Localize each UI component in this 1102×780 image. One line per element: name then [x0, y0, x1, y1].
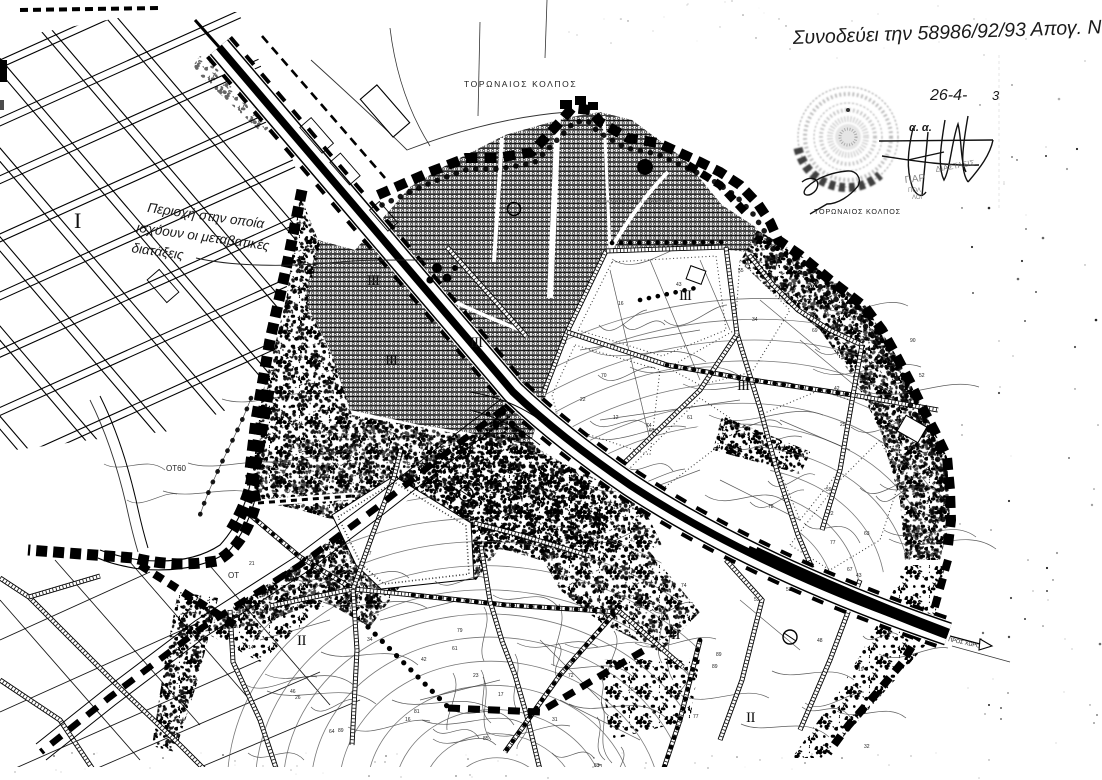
- svg-text:52: 52: [919, 373, 925, 379]
- svg-text:79: 79: [457, 628, 463, 634]
- svg-text:3: 3: [992, 88, 1000, 103]
- svg-text:ΛΟΓ: ΛΟΓ: [912, 195, 925, 201]
- svg-text:III: III: [367, 273, 380, 289]
- svg-text:40: 40: [597, 513, 603, 519]
- svg-text:17: 17: [498, 692, 504, 698]
- svg-text:ΠΑΡ: ΠΑΡ: [904, 173, 926, 186]
- svg-text:42: 42: [421, 657, 427, 663]
- svg-text:ΟΤ: ΟΤ: [228, 571, 239, 580]
- svg-text:48: 48: [817, 638, 823, 644]
- svg-text:64: 64: [329, 729, 335, 735]
- svg-text:61: 61: [687, 415, 693, 421]
- svg-text:72: 72: [568, 673, 574, 679]
- svg-text:78: 78: [768, 504, 774, 510]
- svg-text:81: 81: [414, 709, 420, 715]
- svg-text:II: II: [522, 538, 531, 554]
- svg-text:21: 21: [629, 595, 635, 601]
- svg-text:III: III: [679, 288, 692, 304]
- svg-text:13: 13: [613, 505, 619, 511]
- svg-text:37: 37: [587, 508, 593, 514]
- svg-text:43: 43: [856, 573, 862, 579]
- svg-text:I: I: [74, 208, 81, 233]
- svg-text:85: 85: [483, 736, 489, 742]
- svg-text:26-4-: 26-4-: [929, 87, 967, 104]
- svg-text:ΤΟΡΩΝΑΙΟΣ ΚΟΛΠΟΣ: ΤΟΡΩΝΑΙΟΣ ΚΟΛΠΟΣ: [814, 207, 901, 216]
- svg-text:88: 88: [731, 423, 737, 429]
- svg-text:32: 32: [864, 744, 870, 750]
- svg-text:47: 47: [630, 538, 636, 544]
- svg-text:16: 16: [618, 301, 624, 307]
- svg-text:III: III: [385, 353, 398, 369]
- svg-text:90: 90: [910, 338, 916, 344]
- svg-text:23: 23: [473, 673, 479, 679]
- svg-text:63: 63: [864, 531, 870, 537]
- svg-text:20: 20: [628, 687, 634, 693]
- svg-text:ΤΟΡΩΝΑΙΟΣ ΚΟΛΠΟΣ: ΤΟΡΩΝΑΙΟΣ ΚΟΛΠΟΣ: [464, 79, 577, 89]
- svg-text:ΠΟΛ: ΠΟΛ: [908, 188, 921, 194]
- svg-text:77: 77: [693, 714, 699, 720]
- svg-text:II: II: [297, 633, 306, 649]
- svg-text:36: 36: [543, 553, 549, 559]
- svg-text:77: 77: [830, 540, 836, 546]
- svg-text:III: III: [470, 335, 483, 351]
- svg-text:61: 61: [452, 646, 458, 652]
- svg-text:74: 74: [681, 583, 687, 589]
- svg-text:89: 89: [338, 728, 344, 734]
- svg-text:ΟΤ60: ΟΤ60: [166, 464, 187, 473]
- svg-text:72: 72: [915, 528, 921, 534]
- svg-text:89: 89: [712, 664, 718, 670]
- svg-text:II: II: [671, 627, 680, 643]
- svg-text:14: 14: [248, 645, 254, 651]
- svg-text:III: III: [737, 378, 750, 394]
- svg-text:16: 16: [405, 717, 411, 723]
- svg-text:19: 19: [858, 667, 864, 673]
- svg-text:34: 34: [367, 637, 373, 643]
- svg-text:40: 40: [848, 354, 854, 360]
- svg-text:69: 69: [812, 328, 818, 334]
- svg-text:α. α.: α. α.: [909, 122, 932, 134]
- svg-text:67: 67: [847, 567, 853, 573]
- svg-text:22: 22: [580, 397, 586, 403]
- svg-text:21: 21: [249, 561, 255, 567]
- svg-text:ΠΑΡΑΛΙΑΚΗ ΖΩΝΗ ΑΝΑΨΥΧΗΣ: ΠΑΡΑΛΙΑΚΗ ΖΩΝΗ ΑΝΑΨΥΧΗΣ: [596, 199, 673, 204]
- svg-text:34: 34: [752, 317, 758, 323]
- svg-text:34: 34: [635, 605, 641, 611]
- svg-text:89: 89: [716, 652, 722, 658]
- svg-text:31: 31: [552, 717, 558, 723]
- svg-text:II: II: [746, 710, 755, 726]
- svg-text:78: 78: [884, 435, 890, 441]
- svg-text:26: 26: [295, 695, 301, 701]
- svg-text:70: 70: [601, 373, 607, 379]
